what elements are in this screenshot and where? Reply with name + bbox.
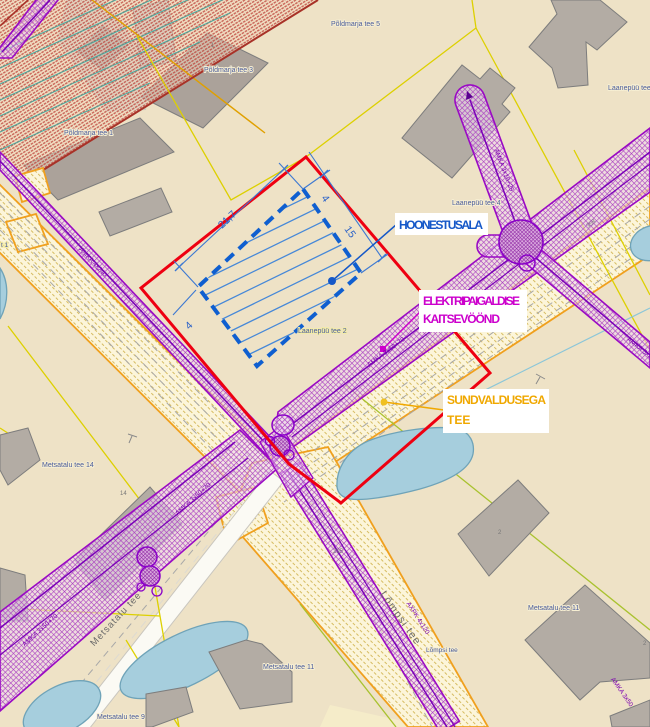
svg-text:Laanepüü tee 4: Laanepüü tee 4	[452, 200, 501, 207]
svg-text:Metsatalu tee 11: Metsatalu tee 11	[528, 605, 579, 612]
svg-text:ELEKTRIPAIGALDISE: ELEKTRIPAIGALDISE	[423, 294, 520, 308]
svg-text:295: 295	[333, 549, 344, 555]
svg-text:Lõmpsi tee: Lõmpsi tee	[426, 647, 458, 654]
svg-text:HOONESTUSALA: HOONESTUSALA	[399, 218, 483, 232]
svg-text:Põldmarja tee 5: Põldmarja tee 5	[331, 21, 380, 28]
svg-text:Metsatalu tee 14: Metsatalu tee 14	[42, 462, 94, 469]
svg-text:Põldmarja tee 1: Põldmarja tee 1	[64, 130, 113, 137]
svg-text:Põldmarja tee 3: Põldmarja tee 3	[204, 67, 253, 74]
svg-text:Laanepüü tee: Laanepüü tee	[608, 85, 650, 92]
svg-text:t 1: t 1	[1, 242, 9, 249]
svg-text:Laanepüü tee 2: Laanepüü tee 2	[298, 328, 347, 335]
svg-text:KAITSEVÖÖND: KAITSEVÖÖND	[423, 311, 500, 326]
svg-text:14: 14	[120, 491, 127, 497]
svg-text:Metsatalu tee 9: Metsatalu tee 9	[97, 714, 145, 721]
svg-text:TEE: TEE	[447, 413, 470, 427]
svg-text:SUNDVALDUSEGA: SUNDVALDUSEGA	[447, 393, 546, 407]
svg-text:Metsatalu tee 11: Metsatalu tee 11	[263, 664, 314, 671]
